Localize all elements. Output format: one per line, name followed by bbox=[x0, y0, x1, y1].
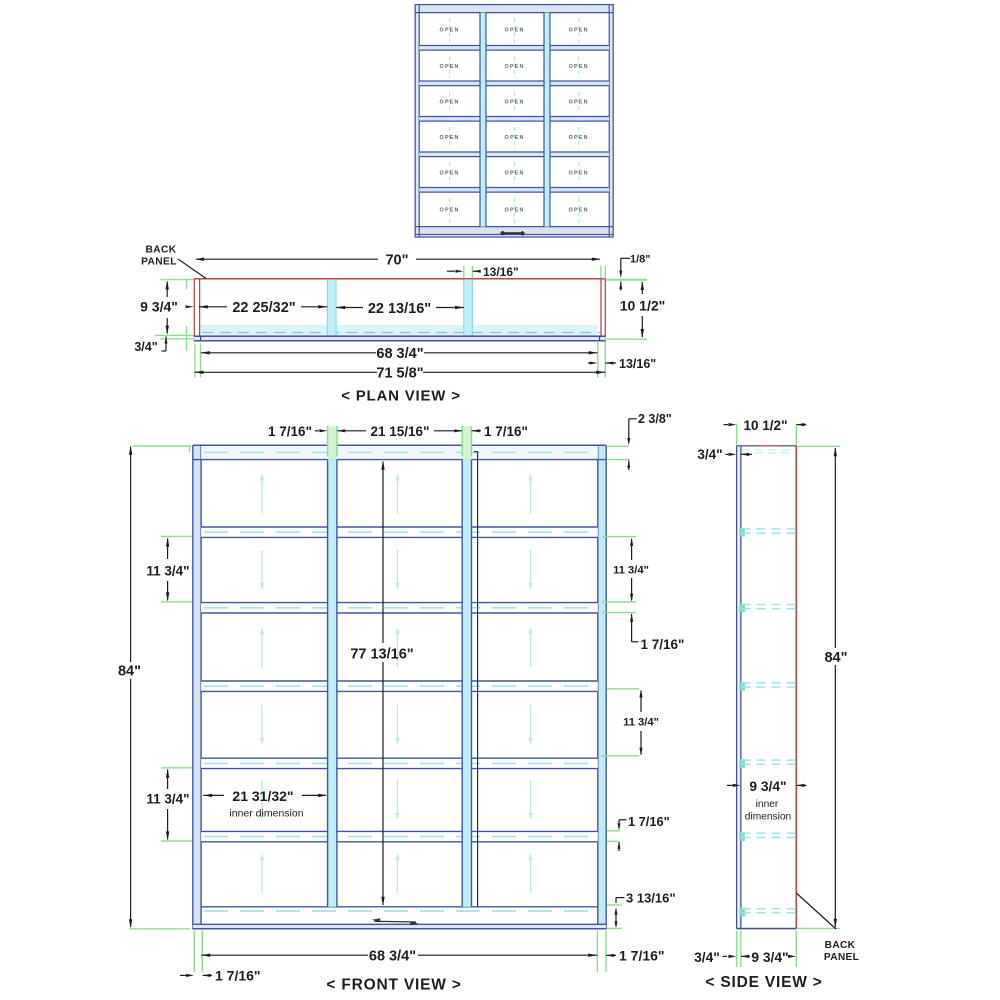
svg-text:68 3/4": 68 3/4" bbox=[369, 949, 416, 965]
svg-text:10 1/2": 10 1/2" bbox=[744, 418, 788, 433]
svg-text:70": 70" bbox=[385, 252, 408, 268]
svg-text:11 3/4": 11 3/4" bbox=[146, 792, 189, 807]
svg-text:77 13/16": 77 13/16" bbox=[350, 646, 413, 662]
svg-text:3/4": 3/4" bbox=[697, 447, 722, 462]
svg-text:OPEN: OPEN bbox=[440, 64, 460, 70]
svg-text:inner dimension: inner dimension bbox=[229, 808, 303, 820]
svg-text:OPEN: OPEN bbox=[505, 99, 525, 105]
svg-text:2 3/8": 2 3/8" bbox=[638, 412, 672, 426]
svg-text:1/8": 1/8" bbox=[630, 253, 651, 265]
svg-text:22 13/16": 22 13/16" bbox=[368, 301, 431, 317]
svg-text:OPEN: OPEN bbox=[505, 170, 525, 176]
svg-text:1 7/16": 1 7/16" bbox=[619, 947, 665, 963]
svg-text:OPEN: OPEN bbox=[440, 27, 460, 33]
svg-text:1 7/16": 1 7/16" bbox=[268, 424, 312, 439]
svg-text:13/16": 13/16" bbox=[483, 265, 519, 279]
svg-text:OPEN: OPEN bbox=[569, 135, 589, 141]
svg-text:inner: inner bbox=[756, 799, 779, 810]
svg-text:OPEN: OPEN bbox=[505, 27, 525, 33]
svg-text:1 7/16": 1 7/16" bbox=[628, 814, 670, 829]
svg-text:21 15/16": 21 15/16" bbox=[371, 424, 430, 439]
svg-text:10 1/2": 10 1/2" bbox=[620, 297, 666, 313]
svg-text:< SIDE VIEW >: < SIDE VIEW > bbox=[705, 974, 822, 991]
svg-text:OPEN: OPEN bbox=[569, 208, 589, 214]
svg-text:BACK: BACK bbox=[145, 245, 176, 256]
svg-text:1 7/16": 1 7/16" bbox=[215, 967, 261, 983]
svg-text:OPEN: OPEN bbox=[569, 64, 589, 70]
svg-text:22 25/32": 22 25/32" bbox=[232, 300, 295, 316]
svg-text:OPEN: OPEN bbox=[440, 135, 460, 141]
svg-text:84": 84" bbox=[118, 664, 141, 680]
svg-text:dimension: dimension bbox=[745, 812, 791, 823]
svg-text:11 3/4": 11 3/4" bbox=[623, 717, 659, 729]
svg-text:OPEN: OPEN bbox=[505, 208, 525, 214]
svg-text:OPEN: OPEN bbox=[440, 99, 460, 105]
svg-text:68 3/4": 68 3/4" bbox=[376, 346, 423, 362]
svg-text:PANEL: PANEL bbox=[141, 257, 177, 268]
svg-text:OPEN: OPEN bbox=[440, 208, 460, 214]
svg-text:OPEN: OPEN bbox=[505, 64, 525, 70]
svg-text:OPEN: OPEN bbox=[505, 135, 525, 141]
svg-text:1 7/16": 1 7/16" bbox=[641, 637, 685, 652]
svg-text:84": 84" bbox=[824, 650, 847, 666]
svg-text:BACK: BACK bbox=[825, 940, 856, 951]
svg-text:9 3/4": 9 3/4" bbox=[749, 779, 786, 794]
svg-text:OPEN: OPEN bbox=[440, 170, 460, 176]
svg-text:11 3/4": 11 3/4" bbox=[613, 564, 649, 576]
svg-text:3/4": 3/4" bbox=[694, 950, 720, 965]
svg-text:OPEN: OPEN bbox=[569, 170, 589, 176]
svg-text:OPEN: OPEN bbox=[569, 27, 589, 33]
svg-text:11 3/4": 11 3/4" bbox=[146, 564, 189, 579]
svg-text:13/16": 13/16" bbox=[619, 357, 656, 371]
svg-text:OPEN: OPEN bbox=[569, 99, 589, 105]
svg-text:< PLAN VIEW >: < PLAN VIEW > bbox=[341, 388, 461, 405]
svg-text:< FRONT VIEW >: < FRONT VIEW > bbox=[326, 976, 461, 993]
svg-text:71 5/8": 71 5/8" bbox=[376, 366, 423, 382]
svg-text:21 31/32": 21 31/32" bbox=[232, 788, 293, 804]
svg-text:3 13/16": 3 13/16" bbox=[626, 890, 676, 905]
svg-text:1 7/16": 1 7/16" bbox=[484, 424, 528, 439]
svg-text:9 3/4": 9 3/4" bbox=[140, 299, 178, 315]
svg-text:PANEL: PANEL bbox=[824, 952, 859, 963]
svg-text:9 3/4": 9 3/4" bbox=[751, 950, 788, 965]
svg-text:3/4": 3/4" bbox=[134, 340, 157, 354]
